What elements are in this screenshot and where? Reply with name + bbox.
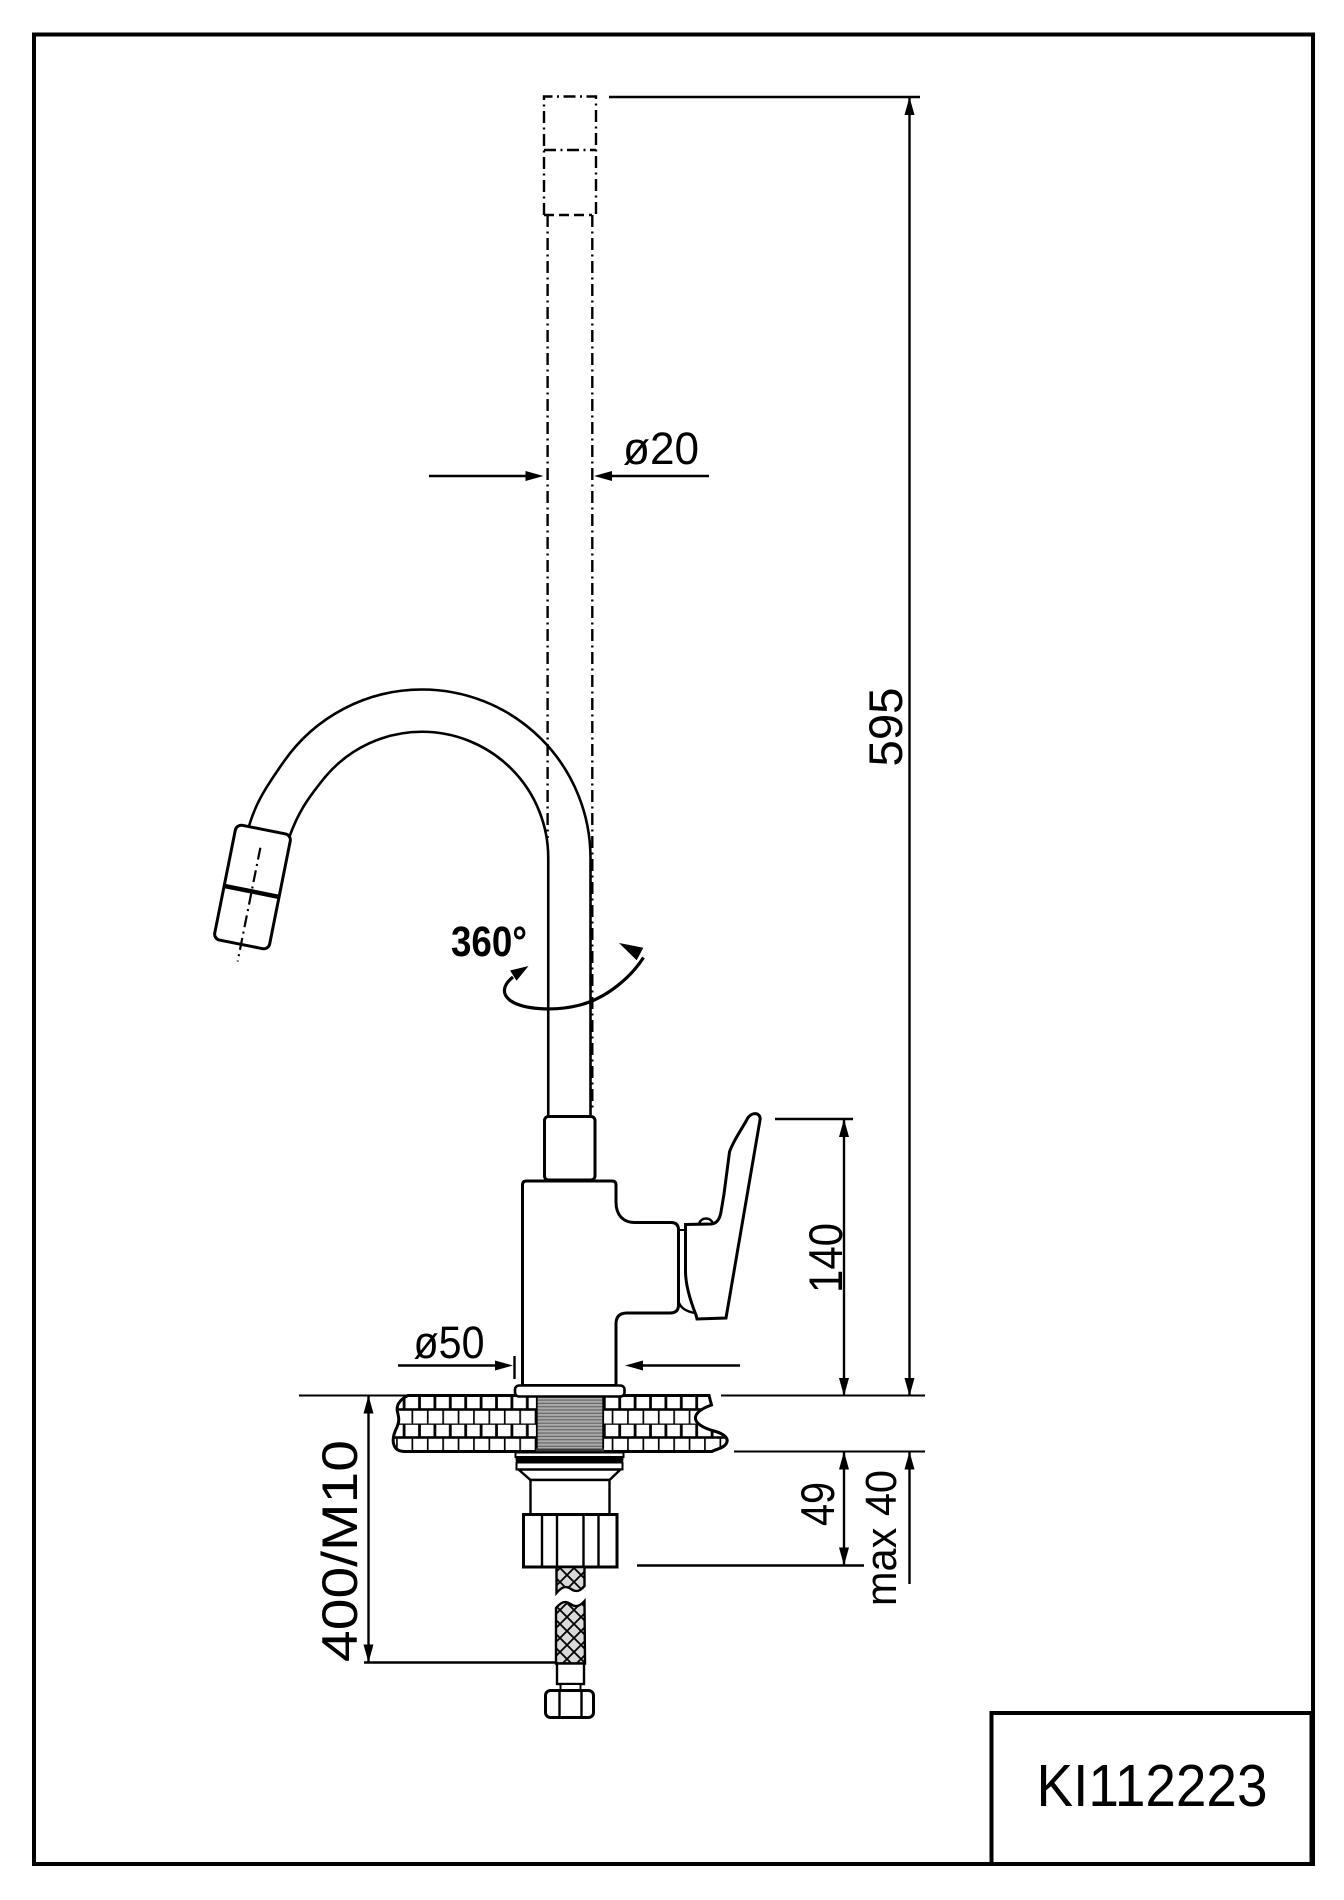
svg-text:140: 140 [799,1223,852,1293]
svg-text:400/M10: 400/M10 [312,1440,368,1662]
svg-text:ø50: ø50 [414,1317,485,1368]
svg-text:KI112223: KI112223 [1037,1753,1268,1819]
svg-text:ø20: ø20 [623,423,699,474]
svg-text:360°: 360° [451,918,527,966]
svg-text:max 40: max 40 [857,1470,906,1606]
svg-text:595: 595 [859,688,912,767]
svg-text:49: 49 [791,1482,844,1526]
